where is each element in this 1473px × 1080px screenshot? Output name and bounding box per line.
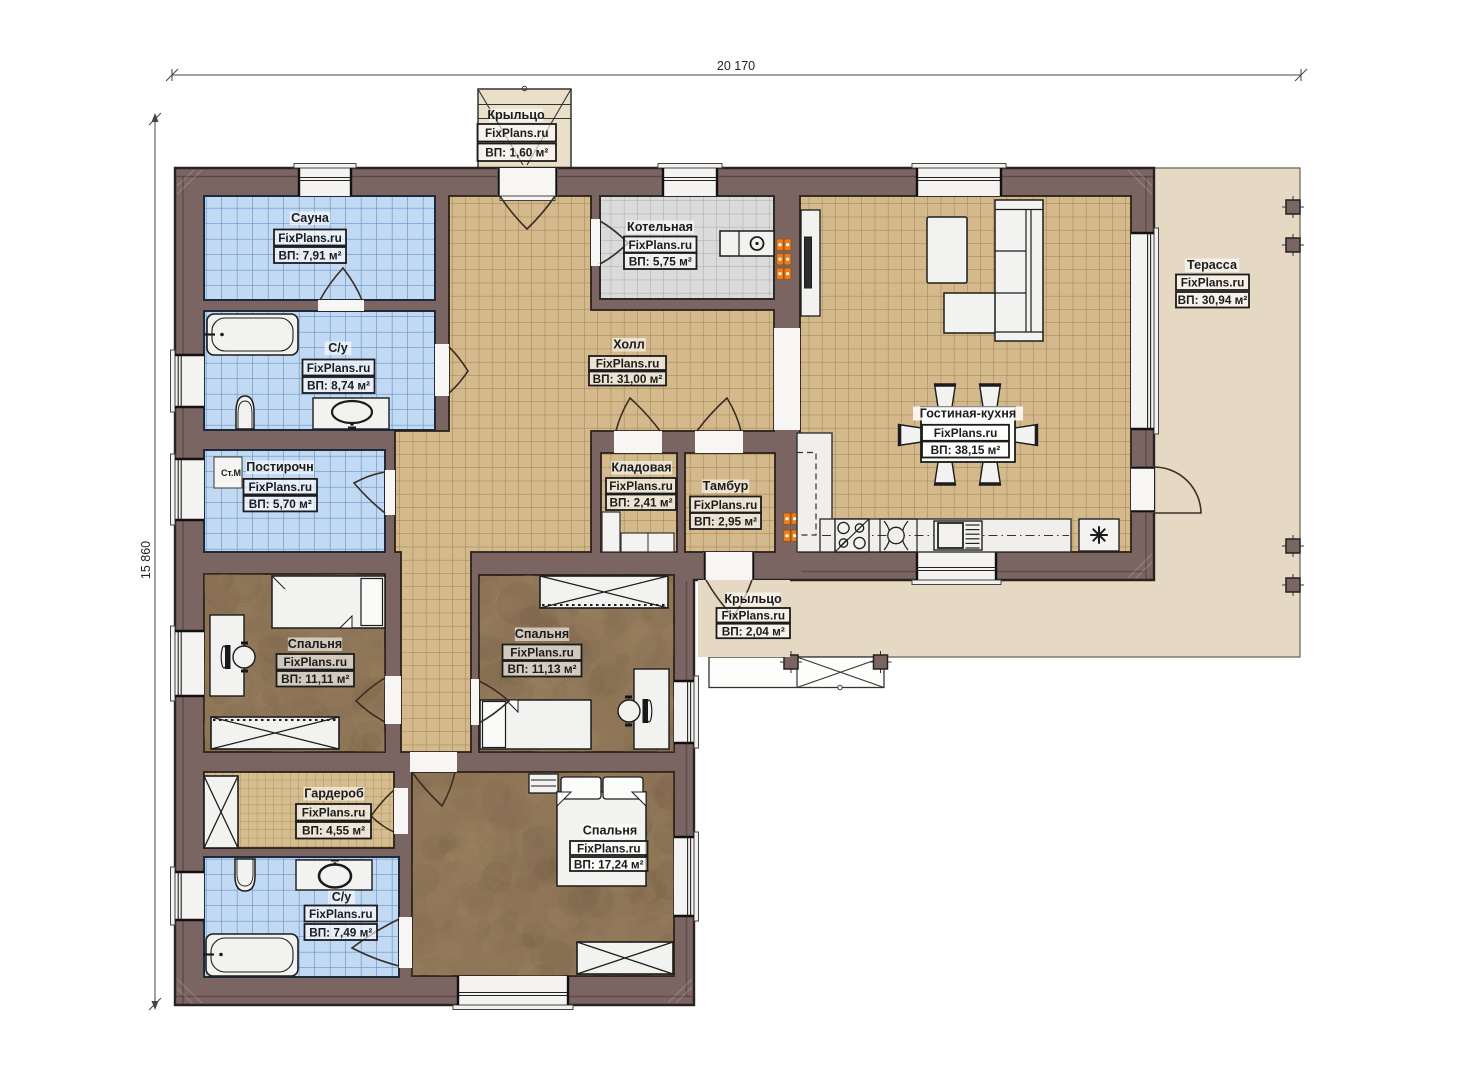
svg-text:ВП: 7,91 м²: ВП: 7,91 м² (278, 248, 341, 262)
svg-text:Тамбур: Тамбур (703, 479, 749, 493)
svg-text:ВП: 5,75 м²: ВП: 5,75 м² (629, 254, 692, 268)
svg-text:Гардероб: Гардероб (304, 787, 364, 801)
svg-text:ВП: 8,74 м²: ВП: 8,74 м² (307, 378, 370, 392)
svg-text:FixPlans.ru: FixPlans.ru (302, 806, 366, 820)
svg-text:FixPlans.ru: FixPlans.ru (934, 426, 998, 440)
svg-text:ВП: 11,13 м²: ВП: 11,13 м² (507, 662, 576, 676)
svg-text:Крыльцо: Крыльцо (724, 592, 782, 606)
svg-text:Спальня: Спальня (515, 627, 569, 641)
svg-text:FixPlans.ru: FixPlans.ru (609, 479, 673, 493)
svg-text:FixPlans.ru: FixPlans.ru (309, 907, 373, 921)
svg-text:FixPlans.ru: FixPlans.ru (307, 361, 371, 375)
svg-text:Сауна: Сауна (291, 211, 330, 225)
svg-text:Спальня: Спальня (288, 637, 342, 651)
svg-text:Холл: Холл (613, 338, 645, 352)
svg-text:Постирочн: Постирочн (246, 460, 313, 474)
svg-text:20 170: 20 170 (717, 59, 755, 73)
svg-text:С/у: С/у (332, 890, 352, 904)
svg-text:FixPlans.ru: FixPlans.ru (1181, 276, 1245, 290)
svg-text:FixPlans.ru: FixPlans.ru (694, 498, 758, 512)
svg-text:ВП: 4,55 м²: ВП: 4,55 м² (302, 824, 365, 838)
svg-text:ВП: 7,49 м²: ВП: 7,49 м² (309, 925, 372, 939)
svg-text:Котельная: Котельная (627, 220, 693, 234)
svg-text:ВП: 17,24 м²: ВП: 17,24 м² (574, 857, 644, 871)
svg-text:Кладовая: Кладовая (611, 461, 671, 475)
svg-text:ВП: 30,94 м²: ВП: 30,94 м² (1178, 293, 1248, 307)
svg-text:ВП: 11,11 м²: ВП: 11,11 м² (281, 672, 349, 686)
svg-text:FixPlans.ru: FixPlans.ru (510, 646, 574, 660)
svg-text:Терасса: Терасса (1187, 258, 1238, 272)
svg-text:ВП: 2,95 м²: ВП: 2,95 м² (694, 514, 757, 528)
svg-text:FixPlans.ru: FixPlans.ru (283, 655, 347, 669)
svg-text:FixPlans.ru: FixPlans.ru (248, 480, 312, 494)
svg-text:FixPlans.ru: FixPlans.ru (577, 841, 641, 855)
svg-text:FixPlans.ru: FixPlans.ru (628, 238, 692, 252)
svg-text:ВП: 2,04 м²: ВП: 2,04 м² (722, 624, 785, 638)
svg-text:ВП: 2,41 м²: ВП: 2,41 м² (609, 496, 672, 510)
svg-text:С/у: С/у (328, 341, 348, 355)
svg-text:ВП: 38,15 м²: ВП: 38,15 м² (931, 443, 1001, 457)
svg-text:Крыльцо: Крыльцо (487, 108, 545, 122)
svg-text:FixPlans.ru: FixPlans.ru (278, 231, 342, 245)
svg-text:FixPlans.ru: FixPlans.ru (596, 356, 660, 370)
svg-text:Гостиная-кухня: Гостиная-кухня (920, 407, 1017, 421)
svg-text:FixPlans.ru: FixPlans.ru (721, 609, 785, 623)
svg-text:Спальня: Спальня (583, 824, 637, 838)
svg-text:ВП: 31,00 м²: ВП: 31,00 м² (593, 372, 663, 386)
svg-text:ВП: 1,60 м²: ВП: 1,60 м² (485, 146, 548, 160)
svg-text:ВП: 5,70 м²: ВП: 5,70 м² (249, 497, 312, 511)
svg-text:15 860: 15 860 (139, 541, 153, 579)
svg-text:Ст.М: Ст.М (221, 468, 241, 478)
svg-text:FixPlans.ru: FixPlans.ru (485, 126, 549, 140)
